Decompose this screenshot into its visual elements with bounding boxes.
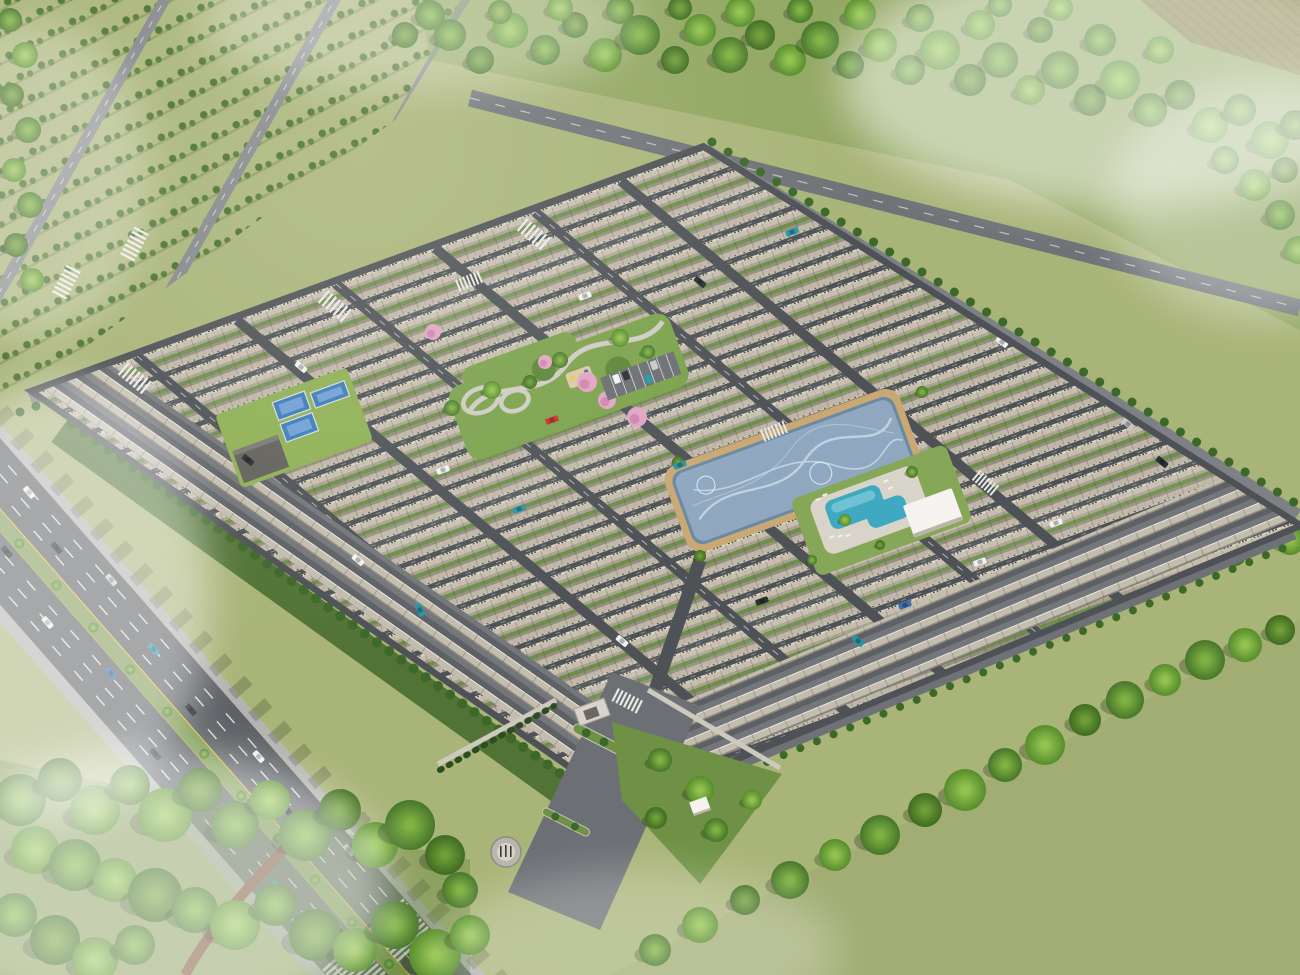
aerial-render xyxy=(0,0,1300,975)
community-masterplan-svg xyxy=(0,0,1300,975)
entrance-tower xyxy=(491,837,521,867)
